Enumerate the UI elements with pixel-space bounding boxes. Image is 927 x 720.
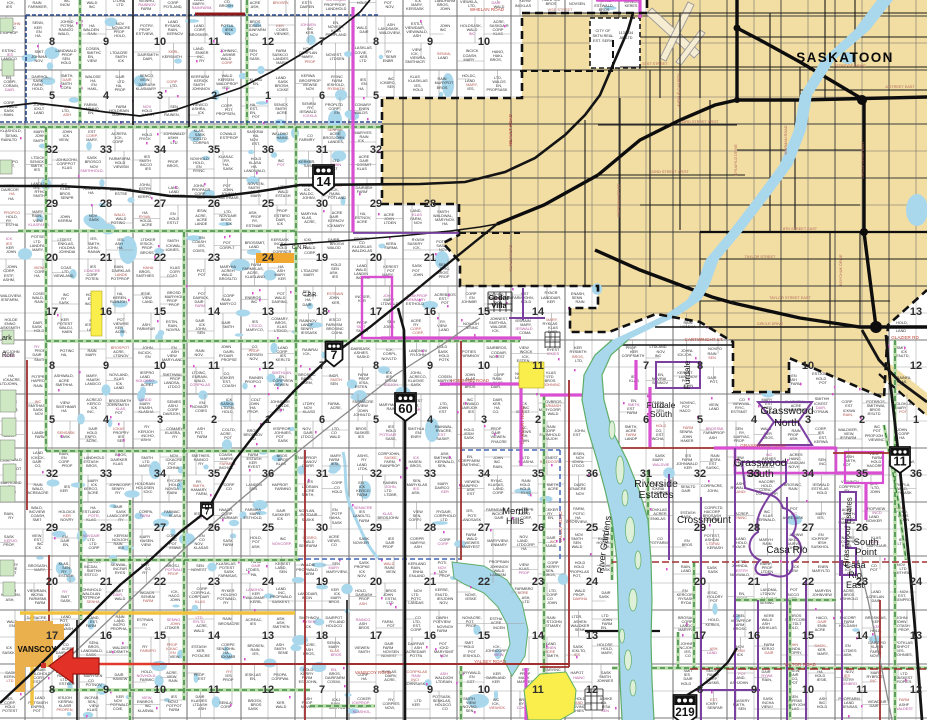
svg-text:12: 12 xyxy=(586,684,598,696)
svg-text:HAJOH: HAJOH xyxy=(545,437,558,441)
svg-text:KERW: KERW xyxy=(519,0,531,3)
svg-text:SASK: SASK xyxy=(89,218,100,222)
svg-text:14: 14 xyxy=(208,306,221,318)
svg-text:POTNOV,: POTNOV, xyxy=(86,683,103,687)
svg-text:PROP: PROP xyxy=(383,545,394,549)
svg-text:NOV,: NOV, xyxy=(250,357,259,361)
svg-text:HOLD: HOLD xyxy=(656,424,667,428)
svg-text:VIEWEN: VIEWEN xyxy=(491,435,506,439)
svg-text:KER: KER xyxy=(278,277,286,281)
svg-text:MARY,: MARY, xyxy=(601,651,612,655)
svg-text:8: 8 xyxy=(49,36,55,48)
svg-text:SMITH,: SMITH, xyxy=(547,654,560,658)
svg-text:PROP: PROP xyxy=(466,624,477,628)
svg-text:EST: EST xyxy=(573,433,581,437)
svg-text:SENACRE: SENACRE xyxy=(568,487,587,491)
svg-text:BROSS: BROSS xyxy=(140,251,154,255)
svg-text:ACRE,: ACRE, xyxy=(196,624,208,628)
svg-text:CORP: CORP xyxy=(438,542,449,546)
svg-text:BROSRY,: BROSRY, xyxy=(273,1,290,5)
svg-text:LAND: LAND xyxy=(439,328,449,332)
svg-text:COFA: COFA xyxy=(61,86,72,90)
svg-text:29: 29 xyxy=(370,198,382,210)
svg-text:COIE,: COIE, xyxy=(113,707,123,711)
svg-text:SENSAS,: SENSAS, xyxy=(842,705,858,709)
svg-text:VIEW,: VIEW, xyxy=(140,78,151,82)
svg-text:KLAS: KLAS xyxy=(357,167,367,171)
svg-text:NOV: NOV xyxy=(870,654,879,658)
svg-text:LAND: LAND xyxy=(33,451,43,455)
svg-text:EST,: EST, xyxy=(252,142,260,146)
svg-text:DAIR: DAIR xyxy=(32,353,41,357)
svg-text:LAND: LAND xyxy=(114,386,124,390)
svg-text:RAIN: RAIN xyxy=(34,300,43,304)
svg-text:FARMPO: FARMPO xyxy=(140,649,156,653)
svg-text:BOYCHUK DRIVE: BOYCHUK DRIVE xyxy=(839,254,843,286)
svg-text:JOHN: JOHN xyxy=(413,273,424,277)
svg-text:LANDES,: LANDES, xyxy=(328,140,344,144)
svg-text:POTACRE: POTACRE xyxy=(192,654,211,658)
svg-text:ENLAND: ENLAND xyxy=(409,574,425,578)
svg-text:PROP,: PROP, xyxy=(247,410,258,414)
svg-text:East: East xyxy=(846,580,865,590)
svg-text:HA: HA xyxy=(521,547,527,551)
svg-text:GRASSWOOD ROAD: GRASSWOOD ROAD xyxy=(740,443,786,448)
svg-text:GLAZIER RD: GLAZIER RD xyxy=(891,335,919,340)
svg-text:34: 34 xyxy=(154,144,167,156)
svg-text:KERWA: KERWA xyxy=(814,440,828,444)
svg-text:SASKC,: SASKC, xyxy=(706,466,720,470)
svg-text:12: 12 xyxy=(262,360,274,372)
svg-text:INC: INC xyxy=(280,537,287,541)
svg-text:17: 17 xyxy=(46,306,58,318)
svg-text:LTD,: LTD, xyxy=(575,359,583,363)
svg-text:9: 9 xyxy=(103,684,109,696)
svg-text:29: 29 xyxy=(370,522,382,534)
svg-text:6: 6 xyxy=(643,414,649,426)
svg-text:ASHWALD,: ASHWALD, xyxy=(54,374,74,378)
svg-text:RYES: RYES xyxy=(115,571,126,575)
svg-text:FARM: FARM xyxy=(223,543,234,547)
svg-text:POTVIEW: POTVIEW xyxy=(433,620,451,624)
svg-text:POTEN: POTEN xyxy=(85,277,98,281)
svg-text:FARMIC: FARMIC xyxy=(140,678,155,682)
svg-text:SASKHOL: SASKHOL xyxy=(811,545,829,549)
svg-text:HAEN: HAEN xyxy=(62,330,73,334)
svg-text:7: 7 xyxy=(205,508,210,517)
svg-text:8: 8 xyxy=(49,360,55,372)
svg-text:15: 15 xyxy=(478,306,490,318)
svg-text:VICTOR ROAD: VICTOR ROAD xyxy=(784,662,817,667)
svg-text:EN: EN xyxy=(9,624,15,628)
svg-text:RY: RY xyxy=(142,623,148,627)
svg-text:NOVKER: NOVKER xyxy=(353,541,369,545)
svg-text:PROP: PROP xyxy=(305,60,316,64)
svg-text:HA: HA xyxy=(9,192,15,196)
svg-text:IES: IES xyxy=(358,435,365,439)
svg-text:BROSACRE: BROSACRE xyxy=(218,622,240,626)
svg-text:NOVLTD: NOVLTD xyxy=(381,357,396,361)
svg-text:NOV: NOV xyxy=(35,412,44,416)
svg-text:32: 32 xyxy=(370,468,382,480)
svg-text:ASHM,: ASHM, xyxy=(3,278,15,282)
svg-text:RAINLTD: RAINLTD xyxy=(1,138,17,142)
svg-text:LANDP: LANDP xyxy=(625,437,638,441)
svg-text:MARYCO,: MARYCO, xyxy=(246,328,264,332)
svg-text:KER: KER xyxy=(441,490,449,494)
svg-text:LANDHOLD: LANDHOLD xyxy=(326,7,347,11)
svg-text:BROS,: BROS, xyxy=(167,164,179,168)
svg-text:LTDCO: LTDCO xyxy=(572,464,585,468)
svg-text:JOHNIES: JOHNIES xyxy=(597,679,614,683)
svg-text:LAND: LAND xyxy=(34,111,44,115)
svg-text:KERNOV: KERNOV xyxy=(167,32,184,36)
svg-text:POT: POT xyxy=(899,410,907,414)
svg-text:JOHN: JOHN xyxy=(440,7,451,11)
svg-text:7: 7 xyxy=(643,360,649,372)
svg-text:PROPHA,: PROPHA, xyxy=(110,627,127,631)
svg-text:HA: HA xyxy=(305,298,311,302)
svg-text:RY: RY xyxy=(62,590,68,594)
svg-text:RY: RY xyxy=(361,458,367,462)
svg-text:DAIR: DAIR xyxy=(113,505,122,509)
svg-text:LAND,: LAND, xyxy=(142,300,153,304)
svg-text:FARM: FARM xyxy=(437,629,448,633)
svg-text:POTDAIR: POTDAIR xyxy=(301,513,318,517)
svg-text:PROP,: PROP, xyxy=(3,543,14,547)
svg-text:CORP,: CORP, xyxy=(412,331,424,335)
svg-text:CORP: CORP xyxy=(332,481,343,485)
svg-text:BROSLTD: BROSLTD xyxy=(219,277,237,281)
svg-text:JOHNBR: JOHNBR xyxy=(461,300,477,304)
svg-text:ACRE,: ACRE, xyxy=(330,406,342,410)
svg-text:NOV: NOV xyxy=(414,221,423,225)
svg-text:EN: EN xyxy=(361,82,367,86)
svg-text:IES: IES xyxy=(118,546,125,550)
svg-text:SASK: SASK xyxy=(464,436,475,440)
svg-text:POT: POT xyxy=(277,163,285,167)
svg-text:7: 7 xyxy=(319,36,325,48)
svg-text:28: 28 xyxy=(424,198,436,210)
svg-text:COMA: COMA xyxy=(519,331,531,335)
svg-text:FARMRY: FARMRY xyxy=(299,138,315,142)
svg-text:SEN: SEN xyxy=(708,356,716,360)
svg-text:4: 4 xyxy=(103,90,110,102)
svg-text:HODGSON ROAD: HODGSON ROAD xyxy=(451,378,490,383)
svg-text:LANDE: LANDE xyxy=(195,222,208,226)
svg-text:BROSKER,: BROSKER, xyxy=(189,33,209,37)
svg-text:5: 5 xyxy=(49,414,55,426)
svg-text:MARY: MARY xyxy=(304,273,315,277)
svg-text:HOLD,: HOLD, xyxy=(114,34,126,38)
svg-text:SENNOV: SENNOV xyxy=(652,381,669,385)
svg-text:VIEWEN: VIEWEN xyxy=(274,383,289,387)
svg-text:8TH STREET EAST: 8TH STREET EAST xyxy=(783,227,818,231)
svg-text:ACRE: ACRE xyxy=(548,487,559,491)
svg-text:PROP: PROP xyxy=(277,209,288,213)
svg-text:PROPEN,: PROPEN, xyxy=(56,708,73,712)
svg-text:RYACR: RYACR xyxy=(545,291,558,295)
svg-text:LTD: LTD xyxy=(7,679,14,683)
svg-text:DAIR,: DAIR, xyxy=(143,57,153,61)
svg-text:8: 8 xyxy=(49,684,55,696)
svg-text:LTDEN: LTDEN xyxy=(384,221,396,225)
svg-text:11: 11 xyxy=(208,360,220,372)
svg-text:KERNOV: KERNOV xyxy=(328,219,345,223)
svg-text:ESTLT: ESTLT xyxy=(167,221,179,225)
svg-text:HAKL,: HAKL, xyxy=(88,87,99,91)
svg-text:12: 12 xyxy=(910,684,922,696)
svg-text:SASKSMITH: SASKSMITH xyxy=(0,326,20,330)
svg-text:LANDCO: LANDCO xyxy=(85,382,101,386)
svg-text:35: 35 xyxy=(208,144,220,156)
svg-text:8: 8 xyxy=(697,684,703,696)
svg-text:FARMNOV: FARMNOV xyxy=(461,354,480,358)
svg-text:HOLD: HOLD xyxy=(817,491,828,495)
svg-text:SMITHINC,: SMITHINC, xyxy=(461,463,480,467)
svg-text:NOVPO: NOVPO xyxy=(708,347,722,351)
svg-text:RYSASK: RYSASK xyxy=(896,491,912,495)
svg-text:KLASA: KLASA xyxy=(169,514,182,518)
svg-text:POT: POT xyxy=(198,273,206,277)
svg-text:BROSCO: BROSCO xyxy=(85,160,102,164)
svg-text:KERES: KERES xyxy=(625,4,638,8)
svg-text:RAIN,: RAIN, xyxy=(32,214,42,218)
svg-text:EN,: EN, xyxy=(88,111,94,115)
svg-text:ACRE: ACRE xyxy=(815,628,826,632)
svg-text:HOLD: HOLD xyxy=(464,645,475,649)
svg-text:LTDCO: LTDCO xyxy=(168,385,181,389)
svg-text:KERSASK: KERSASK xyxy=(406,7,424,11)
svg-text:VIEW,: VIEW, xyxy=(59,138,70,142)
svg-text:26: 26 xyxy=(532,522,544,534)
svg-text:RAINFARM,: RAINFARM, xyxy=(192,6,213,10)
svg-text:C.N.R.: C.N.R. xyxy=(292,245,309,251)
svg-text:11: 11 xyxy=(893,454,906,468)
svg-text:ESTASH: ESTASH xyxy=(276,194,291,198)
svg-text:CO,: CO, xyxy=(35,464,42,468)
svg-text:5: 5 xyxy=(49,90,55,102)
svg-text:CORP: CORP xyxy=(89,546,100,550)
svg-text:ACRE,: ACRE, xyxy=(304,220,316,224)
svg-text:ACRE: ACRE xyxy=(491,621,502,625)
svg-text:CORP: CORP xyxy=(222,61,233,65)
svg-text:22: 22 xyxy=(802,576,814,588)
svg-text:ICK: ICK xyxy=(6,237,13,241)
svg-text:IESW,: IESW, xyxy=(197,209,208,213)
svg-text:ICK: ICK xyxy=(737,653,744,657)
svg-text:CO: CO xyxy=(685,654,691,658)
svg-text:21: 21 xyxy=(748,576,760,588)
svg-text:ENWA: ENWA xyxy=(169,546,181,550)
svg-text:ASHKLAS: ASHKLAS xyxy=(759,626,777,630)
svg-text:ACRE: ACRE xyxy=(518,591,529,595)
svg-text:SEN: SEN xyxy=(197,331,205,335)
svg-text:11: 11 xyxy=(856,684,868,696)
svg-text:MARY,: MARY, xyxy=(86,138,97,142)
svg-text:JOHN: JOHN xyxy=(6,250,17,254)
svg-text:60: 60 xyxy=(398,401,412,416)
svg-text:ICK: ICK xyxy=(35,546,42,550)
svg-text:Crossmount: Crossmount xyxy=(677,515,731,526)
svg-text:16: 16 xyxy=(424,306,436,318)
svg-text:COSMI,: COSMI, xyxy=(327,680,341,684)
svg-text:FARM: FARM xyxy=(359,519,370,523)
svg-text:KLASKLAS: KLASKLAS xyxy=(408,79,428,83)
svg-text:SENN,: SENN, xyxy=(32,21,44,25)
svg-text:RAIN: RAIN xyxy=(788,487,797,491)
svg-text:FARMNO: FARMNO xyxy=(275,487,291,491)
svg-text:26: 26 xyxy=(208,198,220,210)
svg-text:23: 23 xyxy=(208,576,220,588)
svg-text:4: 4 xyxy=(751,414,758,426)
svg-text:CORP,: CORP, xyxy=(304,251,316,255)
svg-text:EN,: EN, xyxy=(63,543,69,547)
svg-text:CO: CO xyxy=(331,543,337,547)
svg-text:WALD: WALD xyxy=(330,435,341,439)
svg-text:Rom: Rom xyxy=(2,353,15,359)
svg-text:LTDBR,: LTDBR, xyxy=(384,493,397,497)
svg-text:CORPDAIR: CORPDAIR xyxy=(189,595,209,599)
svg-text:PROPSEN,: PROPSEN, xyxy=(216,112,236,116)
svg-text:WALDEST: WALDEST xyxy=(895,707,914,711)
svg-text:32: 32 xyxy=(46,144,58,156)
svg-text:LAND: LAND xyxy=(896,329,906,333)
svg-text:14: 14 xyxy=(532,306,545,318)
svg-text:VIEWINC,: VIEWINC, xyxy=(868,438,885,442)
svg-text:KLASHOL,: KLASHOL, xyxy=(353,710,372,714)
svg-text:12: 12 xyxy=(262,684,274,696)
svg-text:EST: EST xyxy=(198,677,206,681)
svg-text:22: 22 xyxy=(478,576,490,588)
svg-text:LAND: LAND xyxy=(871,590,881,594)
svg-text:14: 14 xyxy=(208,630,221,642)
svg-text:Grasswood: Grasswood xyxy=(760,405,813,417)
svg-text:HACO: HACO xyxy=(680,409,691,413)
svg-text:27: 27 xyxy=(154,522,166,534)
svg-text:COIES: COIES xyxy=(195,409,207,413)
svg-text:WALD: WALD xyxy=(276,705,287,709)
svg-text:INC,: INC, xyxy=(819,462,827,466)
svg-text:DAIRBROS,: DAIRBROS, xyxy=(487,346,508,350)
svg-text:ENKLAS: ENKLAS xyxy=(651,517,666,521)
svg-text:CORPSMITH: CORPSMITH xyxy=(622,354,645,358)
svg-text:2: 2 xyxy=(211,90,217,102)
svg-text:36: 36 xyxy=(586,468,598,480)
svg-text:RYDA: RYDA xyxy=(681,601,692,605)
svg-text:KER: KER xyxy=(412,703,420,707)
svg-text:34: 34 xyxy=(802,468,815,480)
svg-text:LANDSMITH,: LANDSMITH, xyxy=(107,650,130,654)
svg-text:CORP: CORP xyxy=(493,491,504,495)
svg-text:FARM: FARM xyxy=(143,599,154,603)
svg-text:DAIRJOH,: DAIRJOH, xyxy=(163,412,181,416)
svg-text:20: 20 xyxy=(694,576,706,588)
svg-text:DAIR,: DAIR, xyxy=(5,88,15,92)
svg-text:BROS: BROS xyxy=(546,2,557,6)
svg-text:17: 17 xyxy=(46,630,58,642)
svg-text:YALSEY ROAD: YALSEY ROAD xyxy=(474,659,507,664)
svg-text:HA: HA xyxy=(8,197,14,201)
svg-text:HA: HA xyxy=(88,191,94,195)
svg-text:14: 14 xyxy=(316,174,331,189)
svg-text:15: 15 xyxy=(802,630,814,642)
svg-text:LAND: LAND xyxy=(707,651,717,655)
svg-text:FARM: FARM xyxy=(35,435,46,439)
svg-text:ESTHOLD: ESTHOLD xyxy=(406,302,424,306)
svg-text:SEN: SEN xyxy=(330,382,338,386)
svg-text:10: 10 xyxy=(802,360,814,372)
svg-text:CIRCLE DRIVE: CIRCLE DRIVE xyxy=(757,322,784,326)
svg-text:LTDNOV: LTDNOV xyxy=(760,592,776,596)
svg-text:ASH: ASH xyxy=(359,602,367,606)
svg-text:17: 17 xyxy=(370,630,382,642)
svg-text:CIRCLE DRIVE EAST: CIRCLE DRIVE EAST xyxy=(861,141,865,179)
svg-text:EN,: EN, xyxy=(548,516,554,520)
svg-text:KLASWA,: KLASWA, xyxy=(138,709,155,713)
svg-text:35: 35 xyxy=(856,468,868,480)
svg-text:CORPWA: CORPWA xyxy=(272,677,289,681)
svg-text:ACRESASK: ACRESASK xyxy=(783,516,804,520)
svg-text:RAIN: RAIN xyxy=(33,384,42,388)
svg-text:HOLDCO: HOLDCO xyxy=(326,624,342,628)
svg-text:COIES,: COIES, xyxy=(193,249,206,253)
svg-text:RAINI: RAINI xyxy=(167,491,177,495)
svg-text:PROP: PROP xyxy=(115,88,126,92)
svg-text:13: 13 xyxy=(910,306,922,318)
svg-text:KLASAS: KLASAS xyxy=(194,546,209,550)
svg-text:9: 9 xyxy=(427,36,433,48)
svg-text:LTDEN: LTDEN xyxy=(761,570,773,574)
svg-text:IES,: IES, xyxy=(90,237,97,241)
svg-text:7: 7 xyxy=(319,360,325,372)
svg-text:KERRAI: KERRAI xyxy=(58,219,72,223)
svg-text:2: 2 xyxy=(859,414,865,426)
svg-text:SMIT: SMIT xyxy=(34,50,44,54)
svg-text:SMIT: SMIT xyxy=(32,518,42,522)
svg-text:NOV,: NOV, xyxy=(358,574,367,578)
svg-text:ESTHA: ESTHA xyxy=(6,223,19,227)
svg-text:ICK,: ICK, xyxy=(492,329,499,333)
svg-text:RAIN,: RAIN, xyxy=(843,413,853,417)
svg-text:SEN: SEN xyxy=(738,707,746,711)
svg-text:12: 12 xyxy=(910,360,922,372)
svg-text:SENPRO: SENPRO xyxy=(895,598,911,602)
svg-text:12: 12 xyxy=(262,36,274,48)
svg-text:ENMARY: ENMARY xyxy=(491,543,508,547)
svg-text:8: 8 xyxy=(373,36,379,48)
svg-text:FARMFAR: FARMFAR xyxy=(137,327,155,331)
svg-text:RAINJOH,: RAINJOH, xyxy=(110,300,128,304)
svg-text:FARM: FARM xyxy=(169,708,180,712)
svg-text:POT: POT xyxy=(33,709,41,713)
svg-text:ICK,: ICK, xyxy=(303,352,310,356)
svg-text:RY: RY xyxy=(144,425,150,429)
svg-text:IES,: IES, xyxy=(466,509,473,513)
svg-text:HA: HA xyxy=(34,274,40,278)
svg-text:HAPOT: HAPOT xyxy=(570,671,584,675)
svg-text:LTDJOHN,: LTDJOHN, xyxy=(0,382,18,386)
svg-text:MARY: MARY xyxy=(464,58,475,62)
svg-text:WALD,: WALD, xyxy=(58,32,70,36)
svg-text:6: 6 xyxy=(319,414,325,426)
svg-text:EST: EST xyxy=(845,404,853,408)
svg-text:KER: KER xyxy=(547,300,555,304)
svg-text:VIEW: VIEW xyxy=(358,404,368,408)
svg-text:PROP: PROP xyxy=(439,275,450,279)
svg-text:Point: Point xyxy=(855,547,877,558)
svg-text:POT,: POT, xyxy=(710,380,718,384)
